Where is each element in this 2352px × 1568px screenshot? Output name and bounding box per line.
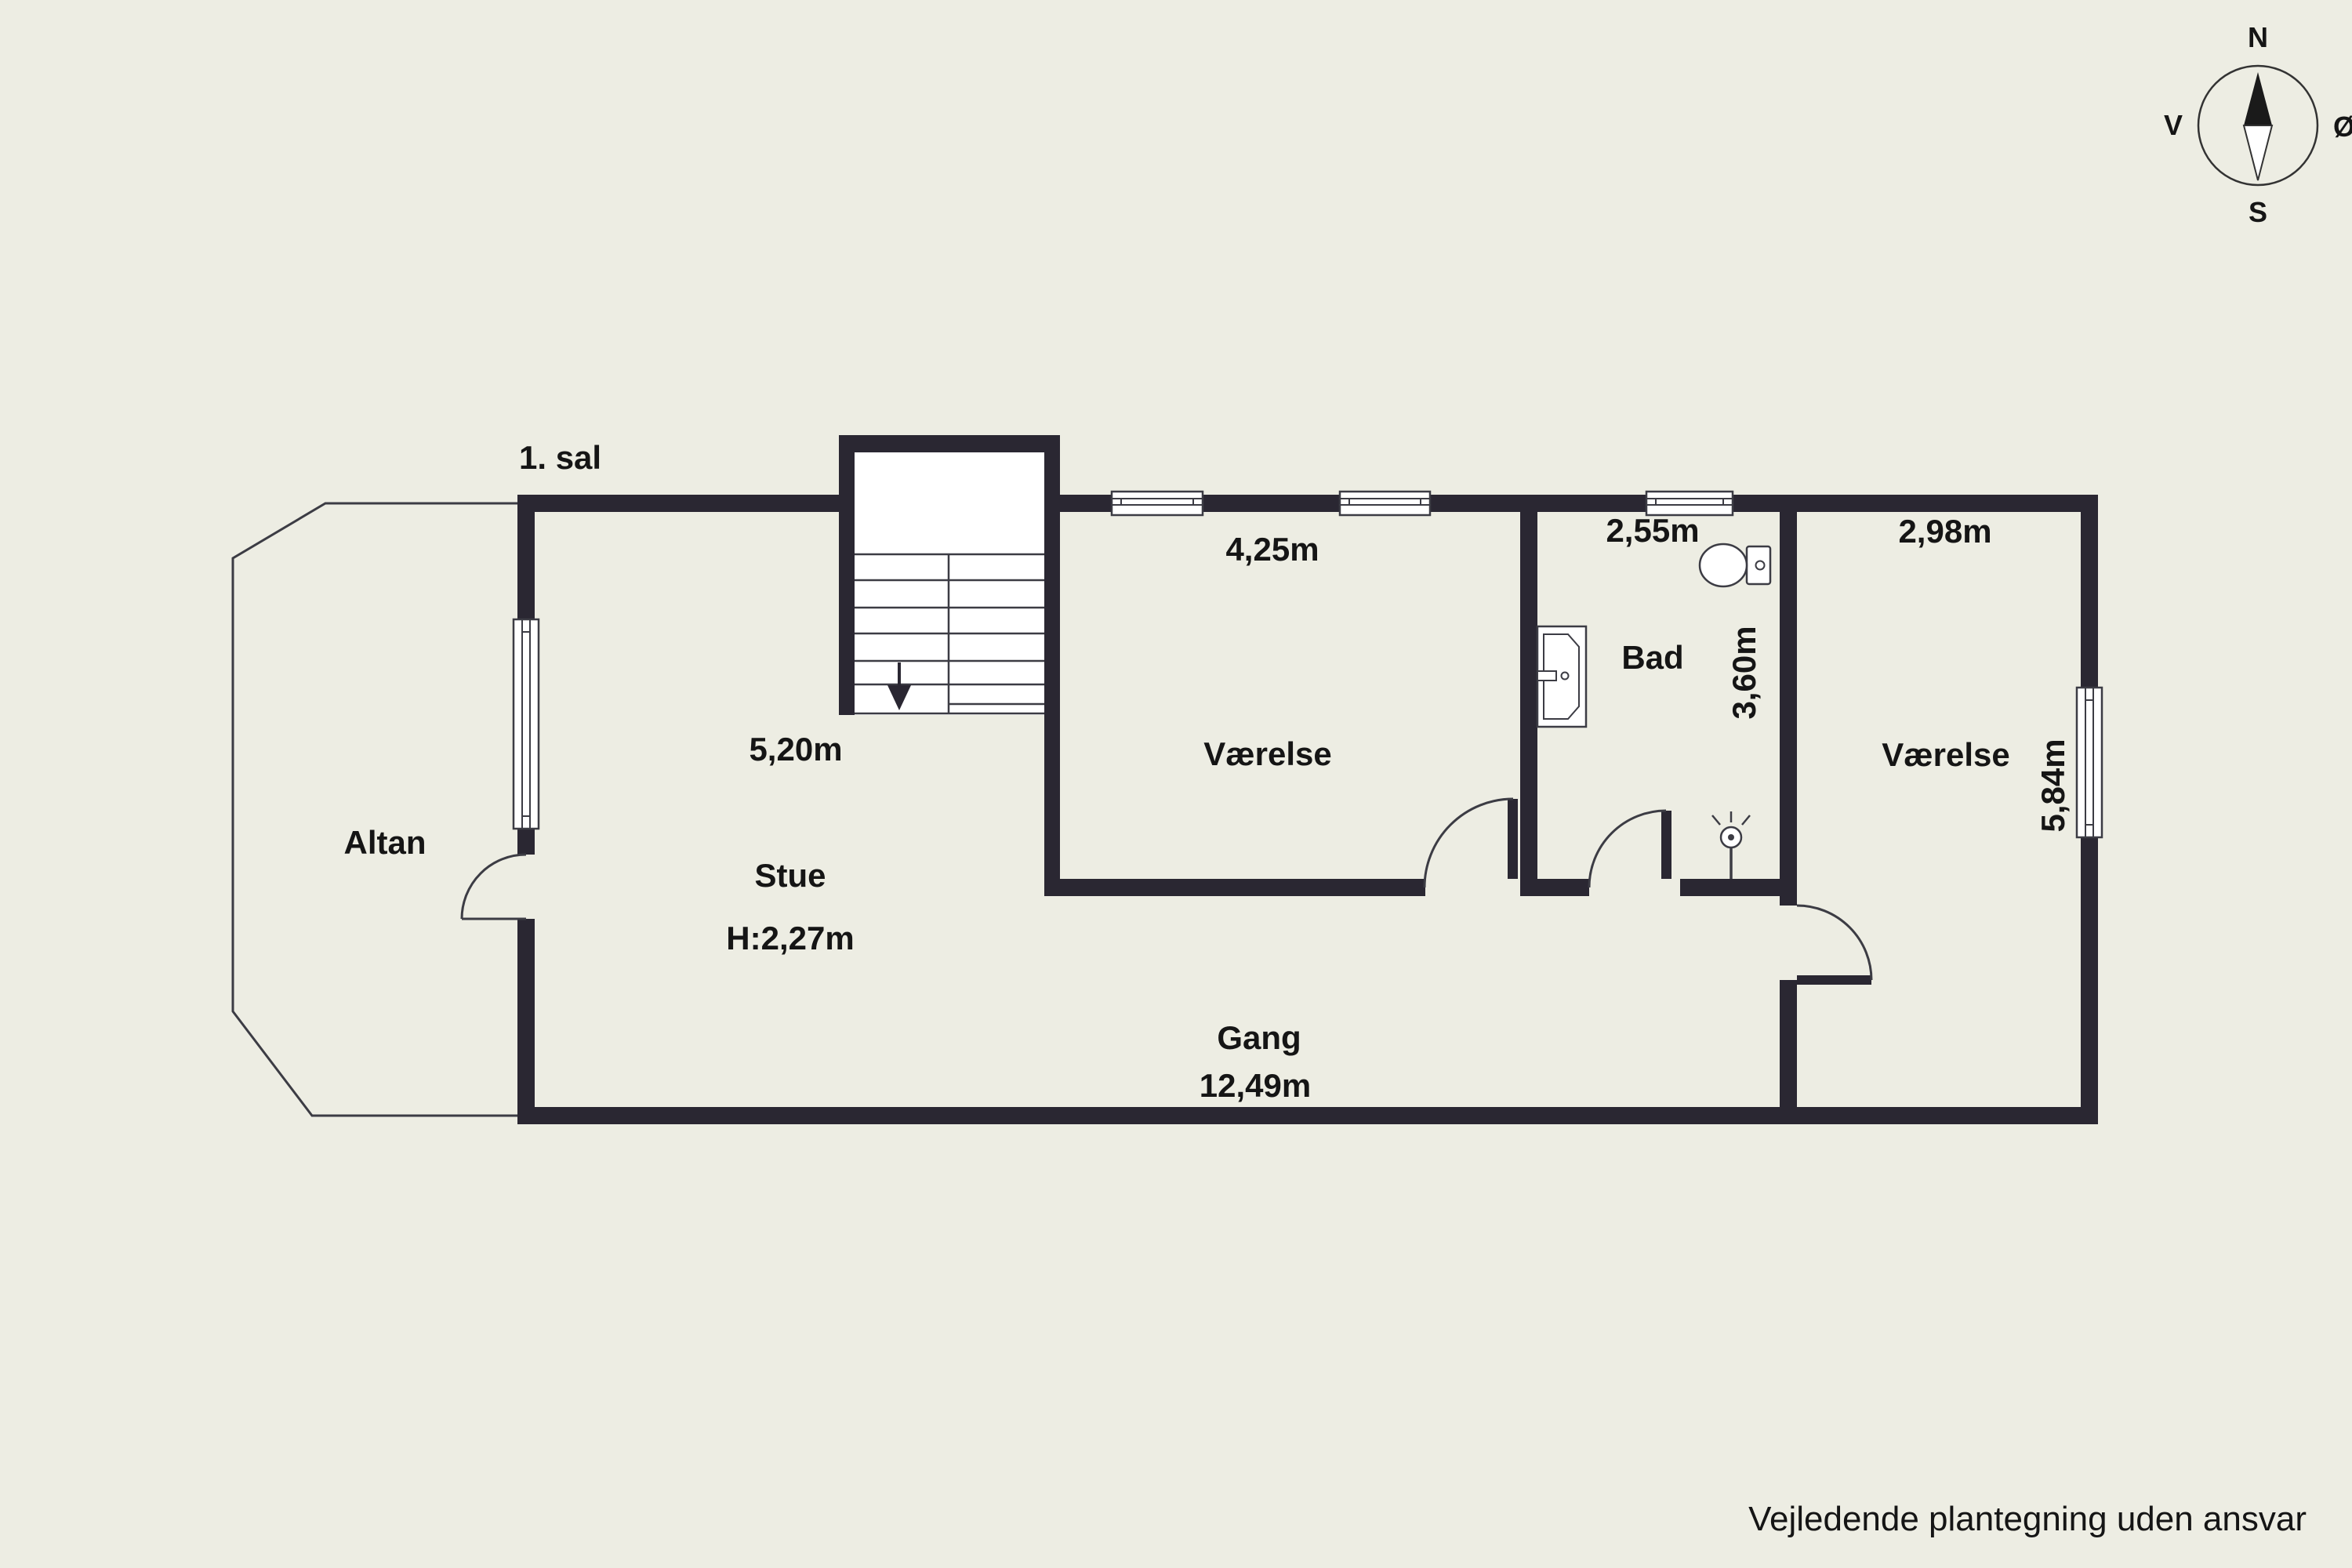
- dim-vaerelse-center-width: 4,25m: [1225, 531, 1319, 568]
- altan-outline: [233, 503, 530, 1116]
- wall-vaerelse-gang: [1060, 879, 1425, 896]
- door-leaf-vaerelse-center: [1508, 799, 1518, 879]
- wall-bad-vaerelse-lower: [1780, 980, 1797, 1107]
- room-label-bad: Bad: [1621, 639, 1683, 676]
- wall-between-doors: [1520, 879, 1589, 896]
- door-gang-vaerelse-right: [1797, 906, 1871, 980]
- window-vaerelse-center-2: [1340, 492, 1430, 515]
- wall-bottom: [517, 1107, 2098, 1124]
- wall-stairwell-left: [839, 435, 855, 715]
- compass-label-south: S: [2249, 196, 2267, 228]
- compass-label-north: N: [2248, 21, 2268, 53]
- dim-total-width: 12,49m: [1200, 1067, 1311, 1104]
- wall-right-upper: [2081, 495, 2098, 688]
- ceiling-light-icon: [1712, 811, 1750, 879]
- room-label-vaerelse-center: Værelse: [1203, 735, 1331, 772]
- room-label-altan: Altan: [344, 824, 426, 861]
- ceiling-height-label: H:2,27m: [726, 920, 854, 956]
- wall-left-stub: [517, 829, 535, 855]
- door-gang-bad: [1589, 811, 1666, 887]
- wall-bad-gang: [1680, 879, 1780, 896]
- dim-vaerelse-right-width: 2,98m: [1898, 513, 1991, 550]
- dim-vaerelse-right-depth: 5,84m: [2034, 739, 2071, 832]
- compass-rose-icon: N S V Ø: [2164, 21, 2352, 228]
- wall-top-left: [517, 495, 839, 512]
- compass-needle-south: [2244, 125, 2272, 180]
- wall-stairwell-right: [1044, 435, 1060, 896]
- compass-label-east: Ø: [2333, 111, 2352, 143]
- page-title: 1. sal: [519, 439, 601, 476]
- room-label-stue: Stue: [754, 857, 826, 894]
- wall-left-lower: [517, 919, 535, 1124]
- wall-bad-vaerelse-upper: [1780, 512, 1797, 906]
- floor-plan-page: N S V Ø 1. sal Altan Stue H:2,27m 5,20m …: [0, 0, 2352, 1568]
- door-gang-vaerelse-center: [1425, 799, 1513, 887]
- compass-needle-north: [2244, 72, 2272, 125]
- window-stue: [514, 619, 539, 829]
- dim-bad-depth: 3,60m: [1726, 626, 1762, 719]
- wall-left-upper: [517, 495, 535, 619]
- sink-icon: [1537, 626, 1586, 727]
- wall-top-right: [1060, 495, 2098, 512]
- door-stue-altan: [462, 855, 526, 919]
- room-label-gang: Gang: [1217, 1019, 1301, 1056]
- disclaimer-text: Vejledende plantegning uden ansvar: [1748, 1500, 2307, 1538]
- window-vaerelse-center-1: [1112, 492, 1203, 515]
- dim-bad-width: 2,55m: [1606, 512, 1699, 549]
- toilet-icon: [1700, 544, 1770, 586]
- wall-vaerelse-bad: [1520, 512, 1537, 896]
- room-label-vaerelse-right: Værelse: [1882, 736, 2009, 773]
- altan-railing-line: [233, 503, 530, 1116]
- staircase: [855, 452, 1044, 715]
- dim-stue-width: 5,20m: [749, 731, 842, 768]
- door-leaf-bad: [1661, 811, 1671, 879]
- floor-plan-drawing: N S V Ø 1. sal Altan Stue H:2,27m 5,20m …: [0, 0, 2352, 1568]
- wall-stairwell-top: [839, 435, 1060, 452]
- door-leaf-vaerelse-right: [1797, 975, 1871, 985]
- wall-right-lower: [2081, 837, 2098, 1124]
- compass-label-west: V: [2164, 109, 2183, 141]
- window-vaerelse-right: [2077, 688, 2102, 837]
